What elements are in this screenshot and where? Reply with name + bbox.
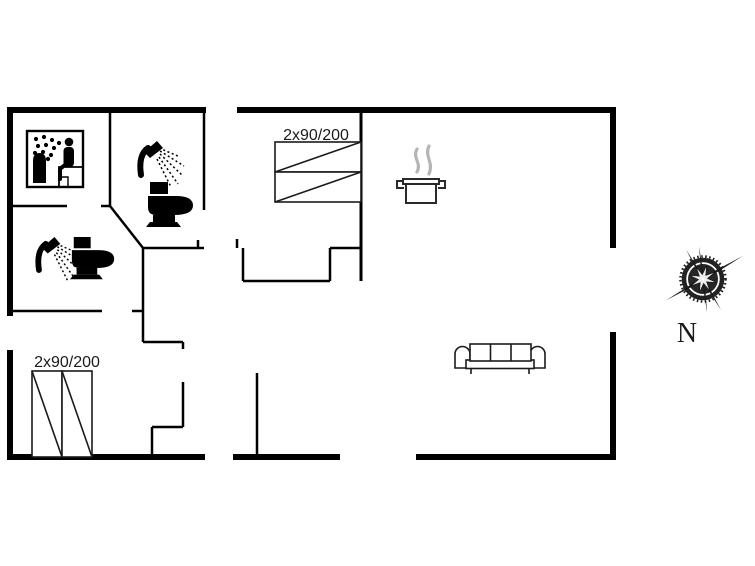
floorplan-canvas: 2x90/200 2x90/200 — [0, 0, 755, 566]
toilet-icon — [70, 237, 114, 279]
sofa-backrest — [470, 344, 531, 361]
floorplan-drawing: 2x90/200 2x90/200 — [0, 0, 755, 566]
bed-symbol — [275, 142, 361, 202]
sauna-heater — [33, 153, 46, 183]
compass-rose-icon — [665, 246, 744, 313]
bed-symbol — [32, 371, 92, 457]
wall-segment — [110, 206, 143, 248]
sofa-icon — [455, 344, 545, 374]
toilet-icon — [146, 182, 193, 227]
compass-north-label: N — [677, 318, 697, 349]
bed-size-label-bottom: 2x90/200 — [34, 354, 100, 371]
sauna-icon — [27, 131, 83, 187]
cooking-pot-icon — [397, 179, 445, 203]
steam-icon — [416, 146, 431, 174]
bed-size-label-top: 2x90/200 — [283, 127, 349, 144]
shower-icon — [140, 141, 184, 187]
pot-body — [406, 184, 436, 203]
